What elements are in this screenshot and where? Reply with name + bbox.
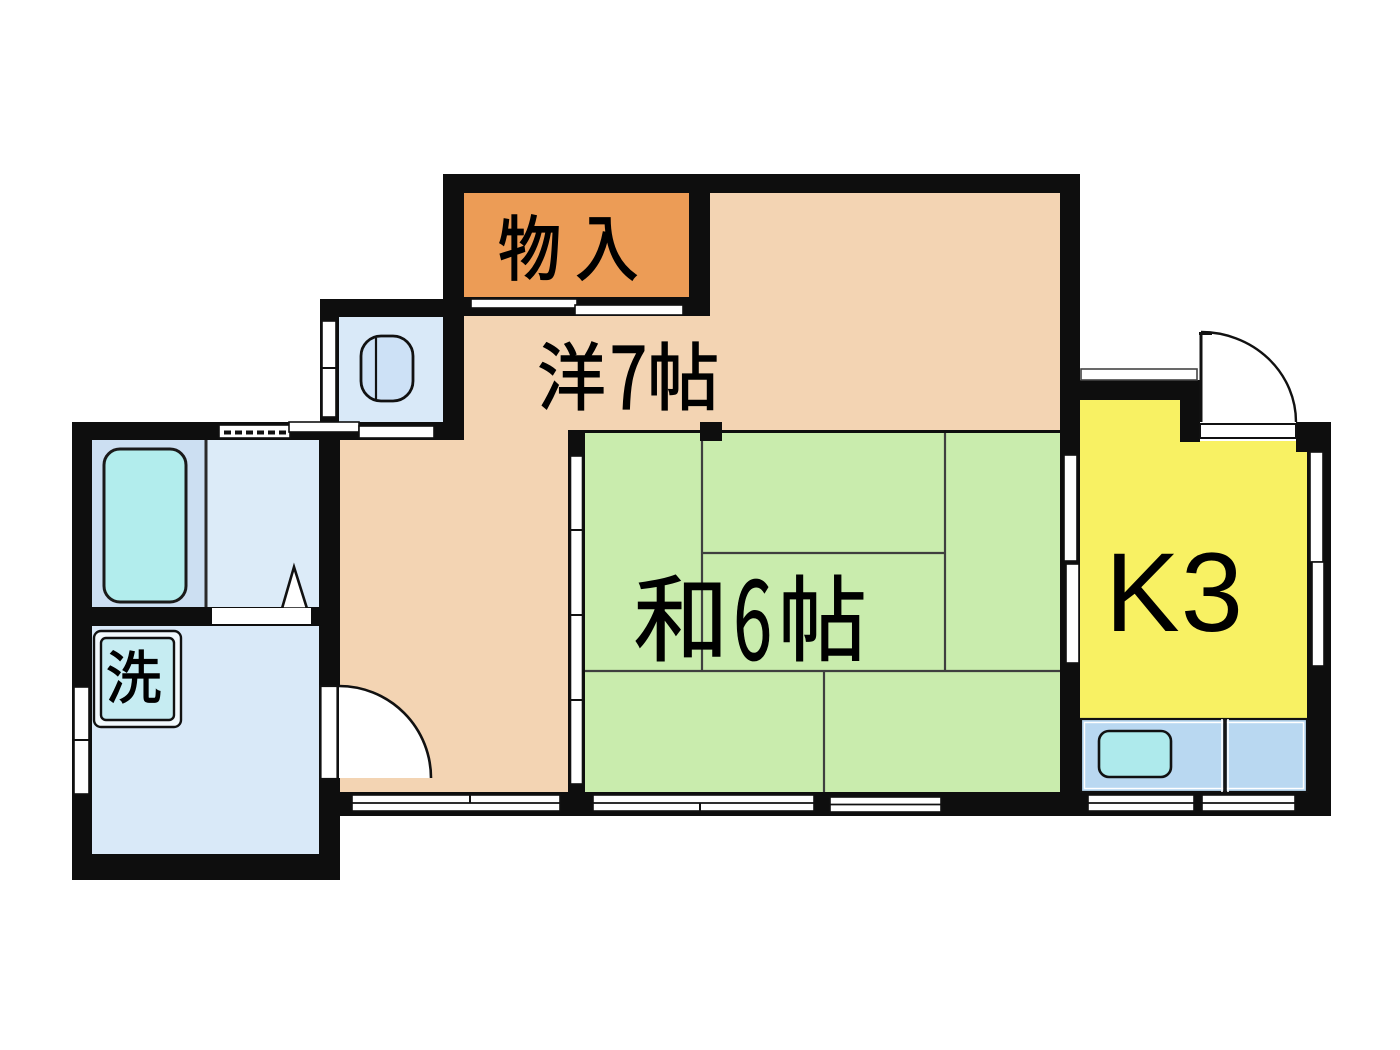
svg-text:K3: K3 (1105, 530, 1244, 655)
